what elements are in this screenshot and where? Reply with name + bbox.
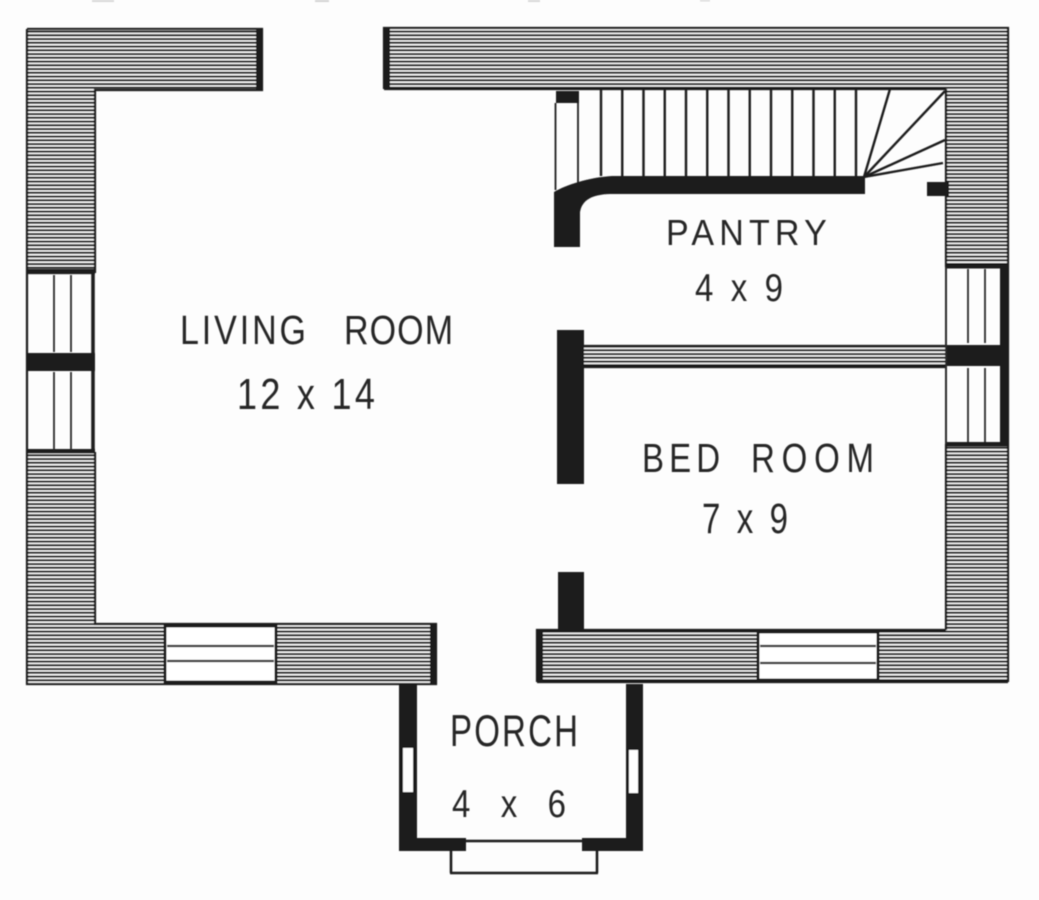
svg-text:ROOM: ROOM <box>751 436 881 481</box>
svg-text:PANTRY: PANTRY <box>666 213 832 253</box>
svg-text:LIVING: LIVING <box>180 307 309 352</box>
svg-text:ROOM: ROOM <box>344 307 454 352</box>
svg-text:BED: BED <box>642 436 725 481</box>
svg-text:PORCH: PORCH <box>450 706 580 756</box>
svg-text:12 x 14: 12 x 14 <box>237 371 378 419</box>
svg-text:7 x 9: 7 x 9 <box>702 495 792 543</box>
svg-text:4 x 9: 4 x 9 <box>695 265 787 309</box>
svg-text:4 x 6: 4 x 6 <box>452 781 577 825</box>
